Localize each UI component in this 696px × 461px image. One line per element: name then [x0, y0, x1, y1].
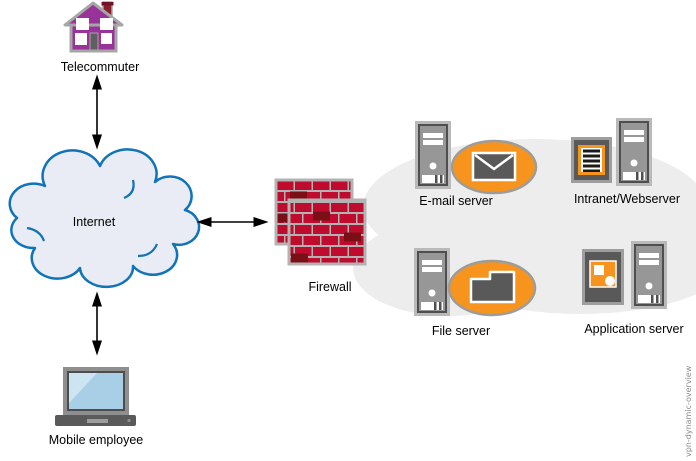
telecommuter-label: Telecommuter [61, 60, 140, 74]
brick-wall-icon [276, 180, 365, 264]
firewall-label: Firewall [308, 280, 351, 294]
internet-label: Internet [73, 215, 116, 229]
house-icon [65, 2, 122, 51]
mobile-employee-node [55, 367, 136, 426]
application-server-label: Application server [584, 322, 683, 336]
edge-telecommuter-internet [93, 76, 102, 148]
intranet-webserver-node [571, 118, 652, 186]
email-server-node [415, 121, 536, 193]
server-tower-icon [631, 241, 667, 309]
diagram-canvas: Internet Telecommuter Mobile employee [0, 0, 696, 461]
server-tower-icon [415, 121, 451, 189]
email-server-label: E-mail server [419, 194, 493, 208]
telecommuter-node [65, 2, 122, 51]
server-tower-icon [414, 248, 450, 316]
figure-watermark: vpn-dynamic-overview [684, 367, 694, 457]
firewall-node [276, 180, 365, 264]
envelope-icon [473, 153, 515, 180]
edge-internet-mobile-employee [93, 293, 102, 354]
mobile-employee-label: Mobile employee [49, 433, 144, 447]
intranet-webserver-label: Intranet/Webserver [574, 192, 680, 206]
network-diagram: Internet Telecommuter Mobile employee [0, 0, 696, 461]
edge-internet-firewall [198, 218, 267, 227]
laptop-icon [55, 367, 136, 426]
document-icon [571, 137, 612, 183]
server-tower-icon [616, 118, 652, 186]
application-icon [582, 249, 624, 305]
file-server-label: File server [432, 324, 490, 338]
